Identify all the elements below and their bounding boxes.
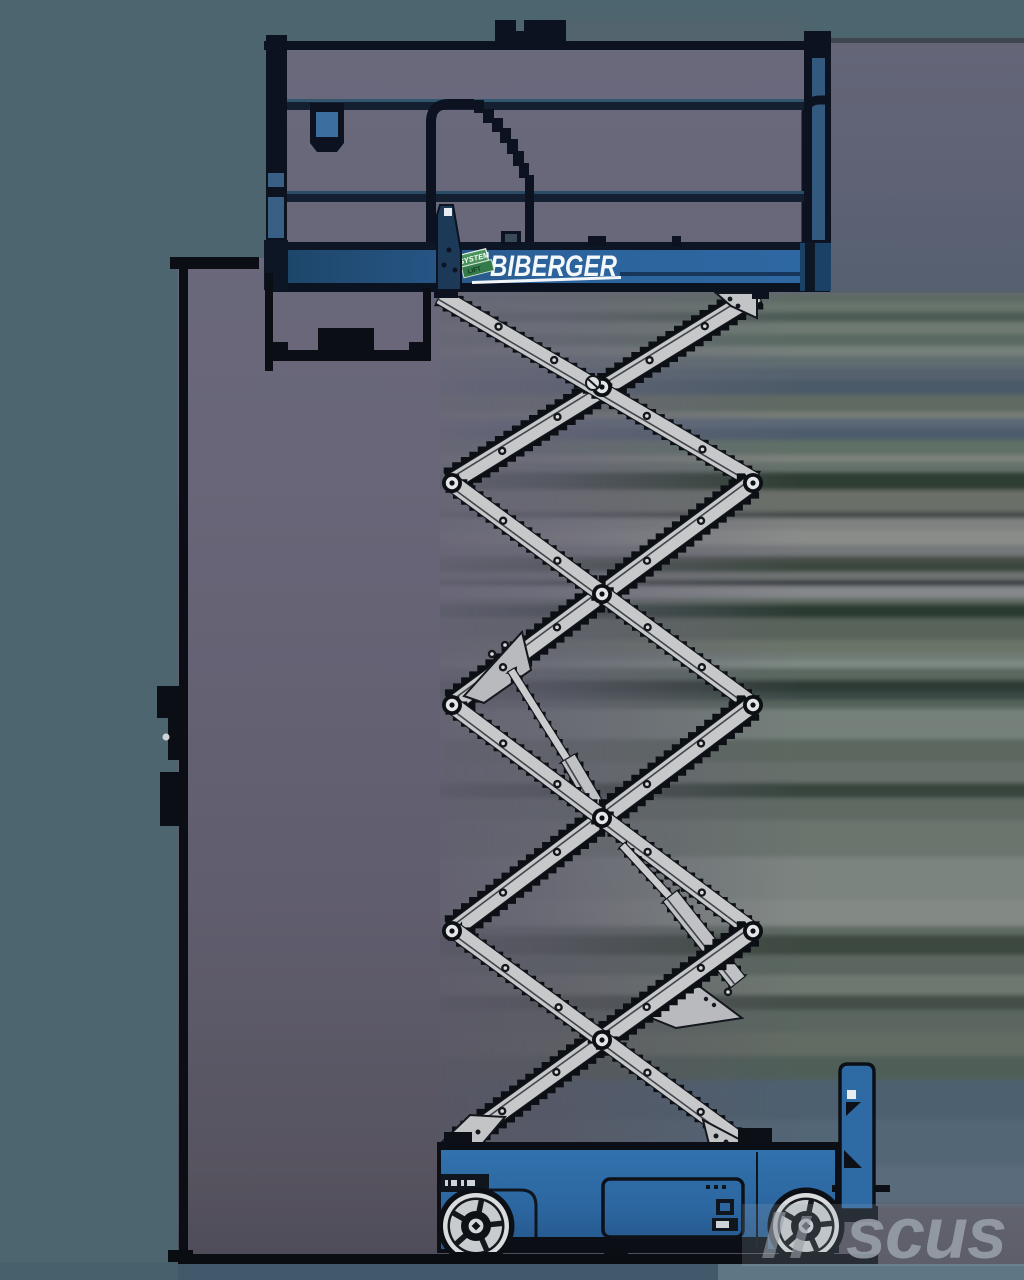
svg-text:scus: scus [846, 1194, 1006, 1274]
svg-text:BIBERGER: BIBERGER [490, 250, 617, 283]
